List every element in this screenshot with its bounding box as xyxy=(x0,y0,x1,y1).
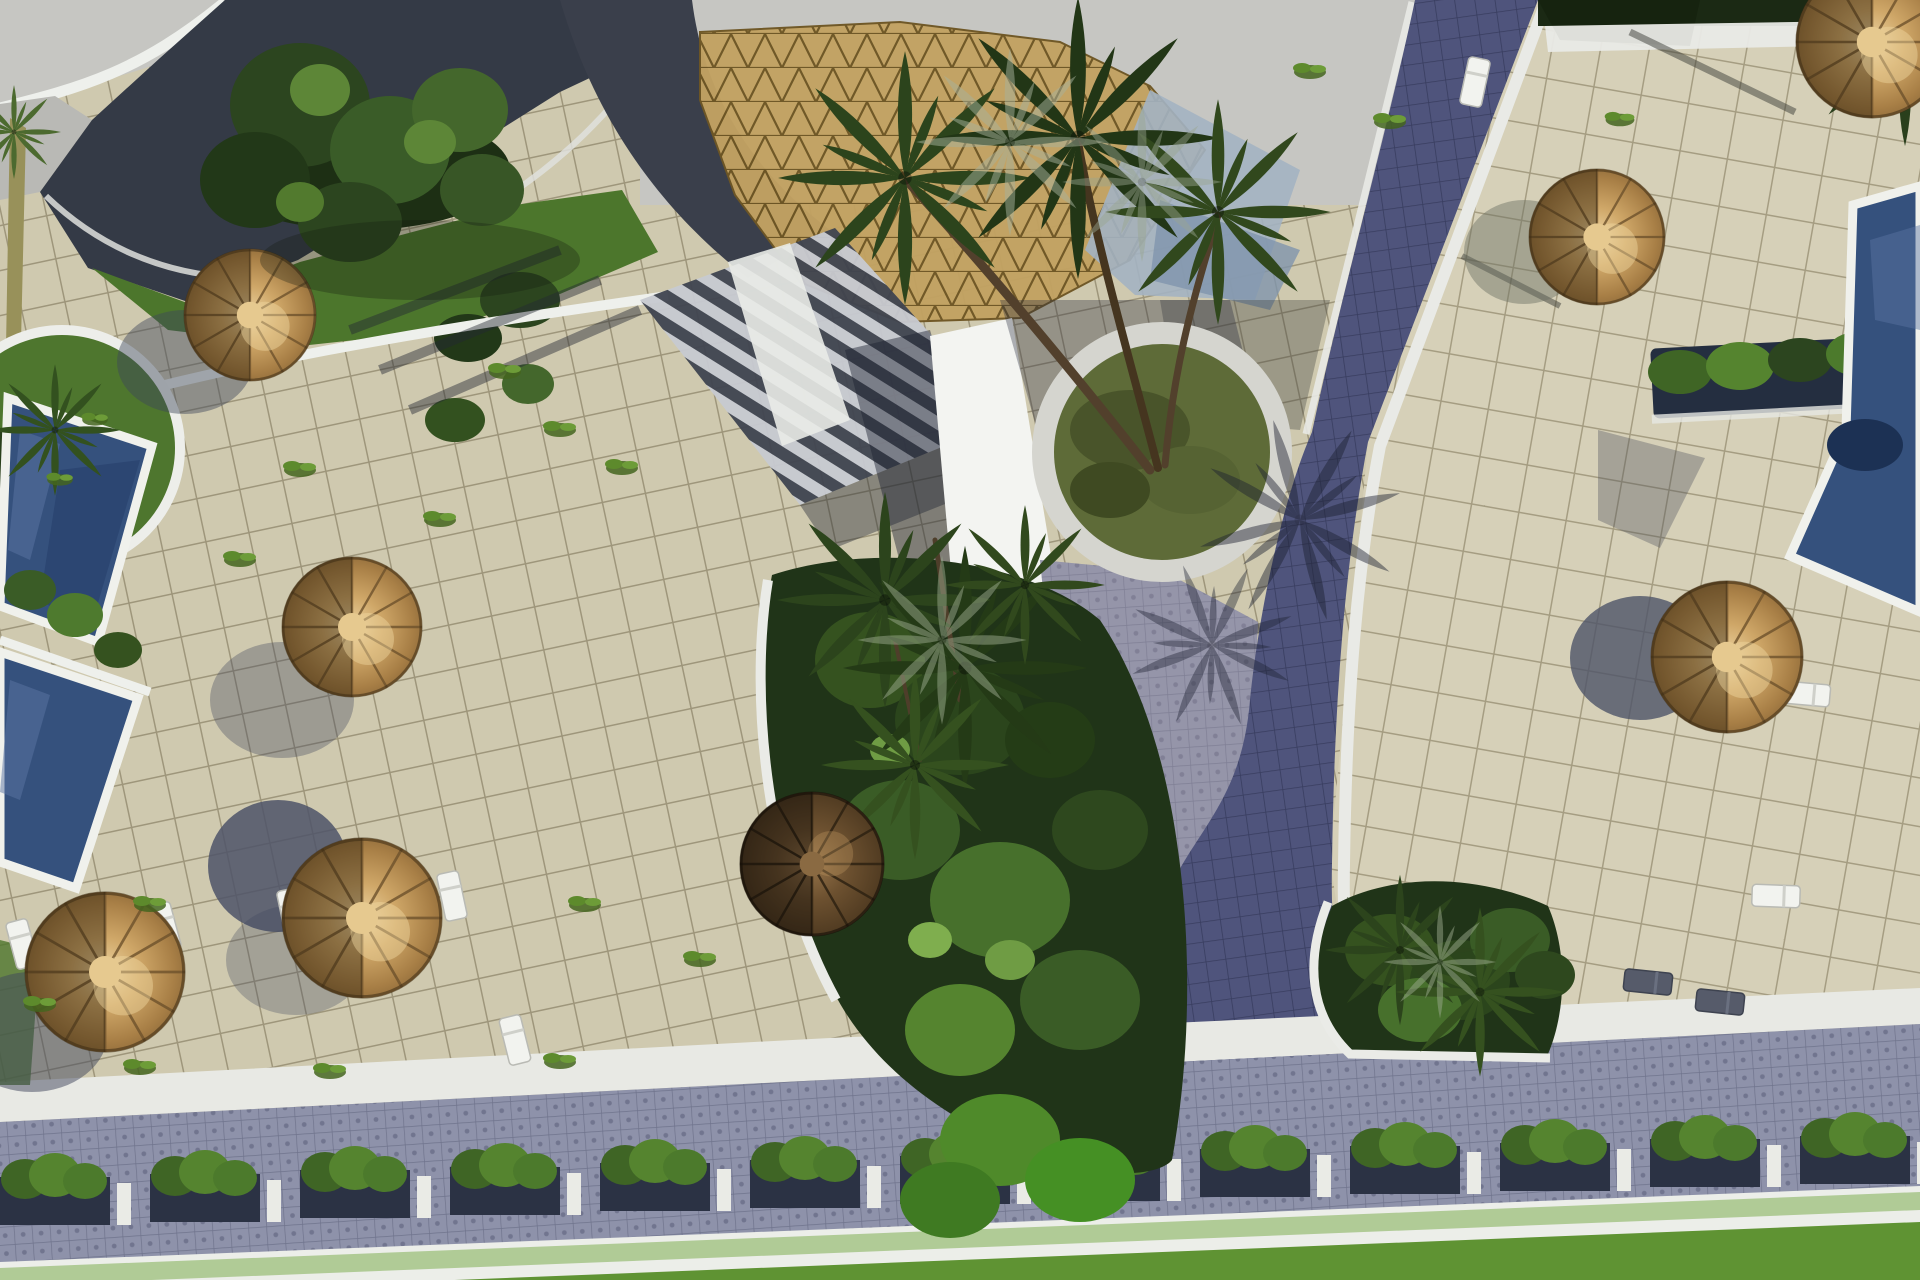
foliage-cluster xyxy=(404,120,456,164)
curb-post xyxy=(1317,1155,1331,1197)
planter-shrub xyxy=(813,1146,857,1182)
canopy-soft-shadow xyxy=(260,220,580,300)
curb-post xyxy=(867,1166,881,1208)
curb-post xyxy=(717,1169,731,1211)
grass-tuft xyxy=(543,1053,576,1069)
curb-post xyxy=(117,1183,131,1225)
palm-tree xyxy=(1062,102,1222,262)
foliage-cluster xyxy=(4,570,56,610)
palm-tree xyxy=(916,48,1104,236)
grass-tuft xyxy=(81,413,107,426)
lounge-chair xyxy=(1752,884,1801,908)
planter-shrub xyxy=(1713,1125,1757,1161)
curb-post xyxy=(1167,1159,1181,1201)
planter-shrub xyxy=(1563,1129,1607,1165)
foliage-cluster xyxy=(1020,950,1140,1050)
palm-tree xyxy=(1395,907,1564,1076)
aerial-site-plan-svg xyxy=(0,0,1920,1280)
grass-tuft xyxy=(313,1063,346,1079)
curb-post xyxy=(567,1173,581,1215)
foliage-cluster xyxy=(1070,462,1150,518)
grass-tuft xyxy=(123,1059,156,1075)
grass-tuft xyxy=(683,951,716,967)
grass-tuft xyxy=(543,421,576,437)
palm-tree xyxy=(857,555,1026,724)
foliage-cluster xyxy=(1052,790,1148,870)
grass-tuft xyxy=(1605,112,1635,126)
curb-post xyxy=(267,1180,281,1222)
grass-tuft xyxy=(223,551,256,567)
pool-3-reflection xyxy=(1870,225,1920,330)
straw-umbrella xyxy=(282,557,422,697)
foliage-cluster xyxy=(900,1162,1000,1238)
foliage-cluster xyxy=(94,632,142,668)
pool-3-deep xyxy=(1827,419,1903,471)
planter-shrub xyxy=(213,1160,257,1196)
foliage-cluster xyxy=(1706,342,1774,390)
planter-shrub xyxy=(1263,1135,1307,1171)
planter-shrub xyxy=(63,1163,107,1199)
foliage-cluster xyxy=(276,182,324,222)
grass-tuft xyxy=(1293,63,1326,79)
grass-tuft xyxy=(23,996,56,1012)
grass-tuft xyxy=(605,459,638,475)
palm-tree xyxy=(1384,906,1497,1019)
grass-tuft xyxy=(283,461,316,477)
foliage-cluster xyxy=(290,64,350,116)
grass-tuft xyxy=(46,473,72,486)
foliage-cluster xyxy=(1768,338,1832,382)
foliage-cluster xyxy=(1025,1138,1135,1222)
straw-umbrella xyxy=(1651,581,1803,733)
foliage-cluster xyxy=(985,940,1035,980)
foliage-cluster xyxy=(1648,350,1712,394)
straw-umbrella xyxy=(282,838,442,998)
lounge-chair xyxy=(1623,969,1673,996)
straw-umbrella xyxy=(1529,169,1665,305)
curb-post xyxy=(1767,1145,1781,1187)
foliage-cluster xyxy=(908,922,952,958)
foliage-cluster xyxy=(905,984,1015,1076)
foliage-cluster xyxy=(440,154,524,226)
straw-umbrella xyxy=(25,892,185,1052)
grass-tuft xyxy=(488,363,521,379)
grass-tuft xyxy=(568,896,601,912)
planter-shrub xyxy=(1413,1132,1457,1168)
grass-tuft xyxy=(423,511,456,527)
aerial-resort-render xyxy=(0,0,1920,1280)
planter-shrub xyxy=(663,1149,707,1185)
grass-tuft xyxy=(133,896,166,912)
dark-straw-umbrella xyxy=(740,792,884,936)
curb-post xyxy=(417,1176,431,1218)
foliage-cluster xyxy=(1378,978,1462,1042)
curb-post xyxy=(1617,1149,1631,1191)
grass-tuft xyxy=(1373,113,1406,129)
planter-shrub xyxy=(1863,1122,1907,1158)
planter-shrub xyxy=(513,1153,557,1189)
curb-post xyxy=(1467,1152,1481,1194)
planter-shrub xyxy=(363,1156,407,1192)
foliage-cluster xyxy=(47,593,103,637)
lounge-chair xyxy=(1695,989,1745,1016)
